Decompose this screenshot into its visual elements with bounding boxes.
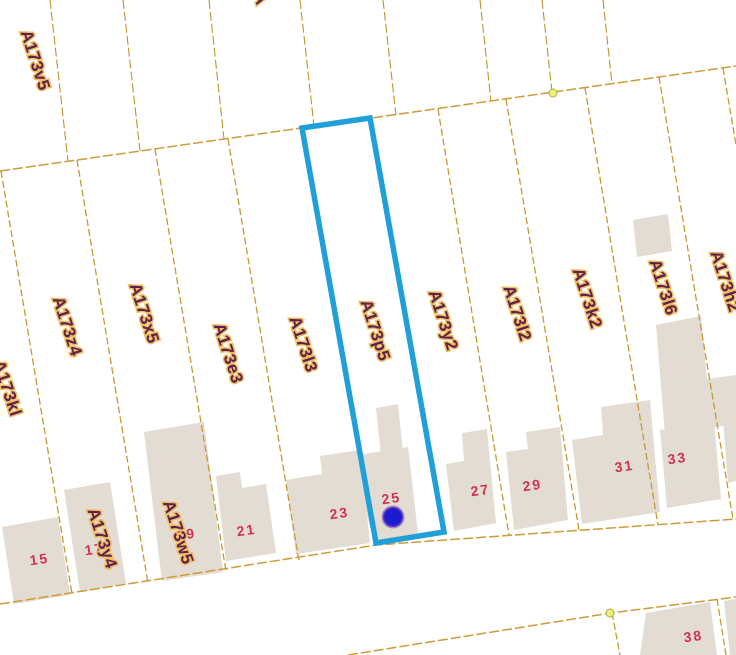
location-marker-dot[interactable] — [383, 507, 403, 527]
house-number: 25 — [380, 489, 402, 508]
parcel-label-selected: A173p5 — [356, 297, 394, 363]
building — [216, 472, 276, 561]
cadastral-map[interactable]: 15 17 19 21 23 25 27 29 31 33 38 A173y4 … — [0, 0, 736, 655]
parcel-label: A173kl — [0, 358, 25, 419]
house-number: 27 — [469, 481, 491, 500]
house-number: 38 — [682, 627, 704, 646]
building — [376, 404, 403, 456]
parcel-line — [542, 0, 552, 92]
parcel-line — [300, 0, 314, 126]
parcel-label: A173l2 — [499, 283, 535, 344]
parcel-line — [123, 0, 140, 151]
parcel-line — [603, 0, 612, 84]
building — [633, 214, 672, 257]
parcel-label: A173e3 — [210, 321, 247, 386]
buildings-layer — [2, 214, 736, 655]
house-number: 15 — [28, 550, 50, 569]
parcel-label: A173v5 — [17, 28, 54, 93]
parcel-label: A173l6 — [645, 257, 681, 318]
parcel-label: A173x5 — [126, 281, 163, 346]
house-number: 29 — [521, 476, 543, 495]
parcel-line — [383, 0, 396, 115]
building — [656, 316, 736, 435]
vertex-node — [606, 609, 614, 617]
parcel-line — [612, 613, 620, 655]
house-number: 31 — [613, 457, 635, 476]
parcel-line — [717, 599, 726, 655]
map-viewport[interactable]: 15 17 19 21 23 25 27 29 31 33 38 A173y4 … — [0, 0, 736, 655]
parcel-line — [209, 0, 224, 139]
parcel-label: A173h2 — [706, 248, 736, 314]
parcel-label: A — [249, 0, 271, 7]
parcel-label: A173k2 — [569, 266, 606, 331]
parcel-label: A173y2 — [425, 288, 462, 353]
parcel-line — [480, 0, 491, 101]
building — [640, 602, 717, 655]
parcel-label: A173z4 — [49, 294, 86, 358]
building — [724, 599, 736, 655]
house-number: 33 — [666, 449, 688, 468]
vertex-node — [549, 89, 557, 97]
house-number: 23 — [328, 504, 350, 523]
parcel-label: A173l3 — [285, 314, 321, 375]
house-number: 21 — [235, 521, 257, 540]
parcel-line — [723, 68, 736, 145]
